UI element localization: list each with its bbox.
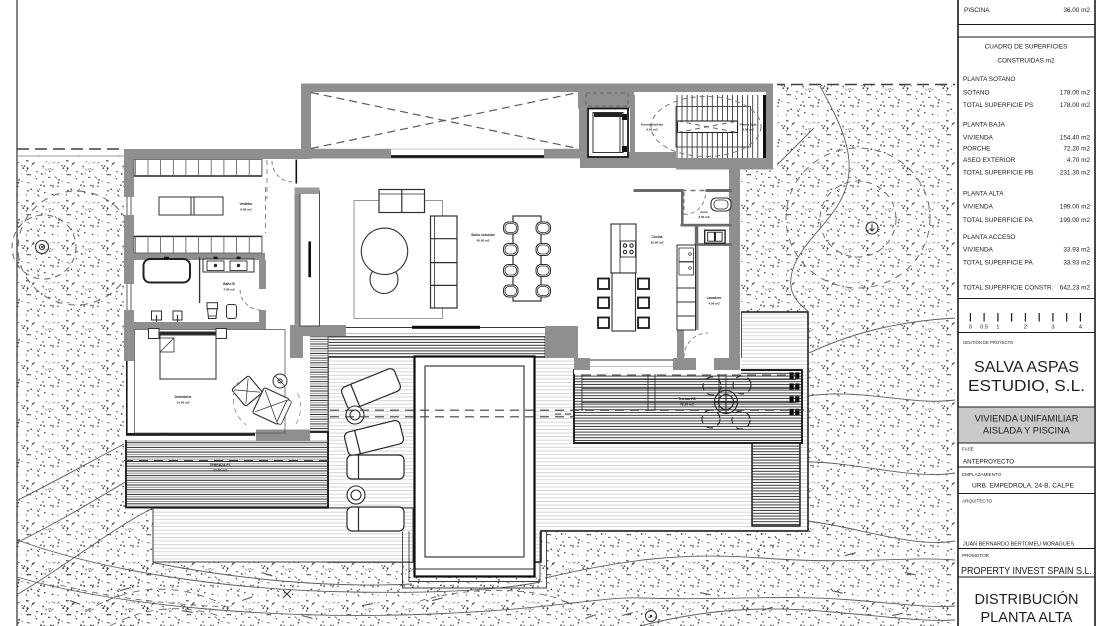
svg-text:PORCHE: PORCHE — [963, 146, 990, 153]
svg-text:Cocina: Cocina — [652, 235, 663, 239]
svg-text:642.23 m2: 642.23 m2 — [1060, 285, 1091, 292]
svg-text:URB. EMPEDROLA, 24-B, CALPE: URB. EMPEDROLA, 24-B, CALPE — [972, 483, 1074, 490]
svg-text:0.5: 0.5 — [980, 325, 988, 331]
svg-text:40.00 m2: 40.00 m2 — [476, 239, 489, 243]
svg-text:PISCINA: PISCINA — [964, 7, 990, 14]
svg-text:Vestidor: Vestidor — [239, 202, 253, 206]
svg-text:TERRAZA P1: TERRAZA P1 — [209, 463, 230, 467]
svg-text:TOTAL SUPERFICIE PA: TOTAL SUPERFICIE PA — [963, 260, 1033, 267]
svg-text:DISTRIBUCIÓN: DISTRIBUCIÓN — [975, 591, 1079, 608]
svg-text:Salón comedor: Salón comedor — [471, 233, 496, 237]
svg-text:GESTIÓN DE PROYECTO: GESTIÓN DE PROYECTO — [963, 340, 1014, 345]
svg-text:VIVIENDA: VIVIENDA — [963, 135, 994, 142]
svg-text:ASEO EXTERIOR: ASEO EXTERIOR — [963, 157, 1016, 164]
svg-text:TOTAL SUPERFICIE PB: TOTAL SUPERFICIE PB — [963, 170, 1033, 177]
svg-text:33.93 m2: 33.93 m2 — [1063, 260, 1090, 267]
svg-text:TOTAL SUPERFICIE PS: TOTAL SUPERFICIE PS — [963, 102, 1033, 109]
svg-text:178.00 m2: 178.00 m2 — [1060, 90, 1091, 97]
svg-text:231.30 m2: 231.30 m2 — [1060, 170, 1091, 177]
svg-text:2.50 m2: 2.50 m2 — [698, 215, 709, 219]
svg-text:CONSTRUIDAS m2: CONSTRUIDAS m2 — [997, 58, 1055, 65]
svg-text:TOTAL SUPERFICIE CONSTR.: TOTAL SUPERFICIE CONSTR. — [963, 285, 1054, 292]
svg-text:72.20 m2: 72.20 m2 — [1063, 146, 1090, 153]
svg-text:EMPLAZAMIENTO: EMPLAZAMIENTO — [962, 472, 1002, 477]
svg-text:PROPERTY INVEST SPAIN S.L.: PROPERTY INVEST SPAIN S.L. — [961, 565, 1092, 577]
svg-text:4: 4 — [1079, 325, 1082, 331]
svg-text:JUAN BERNARDO BERTOMEU MORAGUE: JUAN BERNARDO BERTOMEU MORAGUES — [963, 542, 1074, 548]
svg-text:SOTANO: SOTANO — [963, 90, 990, 97]
svg-text:Terraza PB: Terraza PB — [678, 397, 696, 401]
svg-text:PROMOTOR: PROMOTOR — [962, 553, 990, 558]
svg-text:ARQUITECTO: ARQUITECTO — [962, 499, 992, 504]
svg-text:Dormitorio: Dormitorio — [175, 395, 192, 399]
svg-text:PLANTA SOTANO: PLANTA SOTANO — [963, 76, 1015, 83]
svg-text:CUADRO DE SUPERFICIES: CUADRO DE SUPERFICIES — [985, 44, 1068, 51]
svg-text:3: 3 — [1051, 325, 1054, 331]
svg-text:14.00 m2: 14.00 m2 — [176, 401, 189, 405]
svg-text:ESTUDIO, S.L.: ESTUDIO, S.L. — [968, 378, 1085, 395]
svg-text:33.93 m2: 33.93 m2 — [1063, 247, 1090, 254]
svg-text:154.40 m2: 154.40 m2 — [1060, 135, 1091, 142]
svg-text:ANTEPROYECTO: ANTEPROYECTO — [963, 459, 1014, 466]
svg-text:TOTAL SUPERFICIE PA: TOTAL SUPERFICIE PA — [963, 217, 1033, 224]
svg-text:2: 2 — [1024, 325, 1027, 331]
svg-text:FASE: FASE — [962, 447, 974, 452]
svg-text:PLANTA BAJA: PLANTA BAJA — [963, 122, 1006, 129]
svg-text:178.00 m2: 178.00 m2 — [1060, 102, 1091, 109]
svg-text:VIVIENDA UNIFAMILIAR: VIVIENDA UNIFAMILIAR — [975, 414, 1079, 424]
svg-text:Planta Baja: Planta Baja — [740, 123, 757, 127]
svg-text:PLANTA ALTA: PLANTA ALTA — [963, 191, 1004, 198]
svg-text:9.00 m2: 9.00 m2 — [240, 208, 252, 212]
svg-text:20.00 m2: 20.00 m2 — [650, 241, 663, 245]
svg-text:AISLADA Y PISCINA: AISLADA Y PISCINA — [983, 426, 1071, 436]
svg-text:Aseo: Aseo — [700, 210, 708, 214]
svg-text:VIVIENDA: VIVIENDA — [963, 247, 994, 254]
svg-text:6.00 m2: 6.00 m2 — [646, 128, 658, 132]
svg-text:72.20 m2: 72.20 m2 — [680, 403, 694, 407]
svg-text:1: 1 — [996, 325, 999, 331]
svg-text:PLANTA ALTA: PLANTA ALTA — [981, 610, 1073, 626]
svg-text:3.00 m2: 3.00 m2 — [742, 128, 754, 132]
svg-text:199.00 m2: 199.00 m2 — [1060, 204, 1091, 211]
svg-text:0: 0 — [969, 325, 972, 331]
svg-text:4.70 m2: 4.70 m2 — [1067, 157, 1091, 164]
svg-text:4.00 m2: 4.00 m2 — [708, 302, 720, 306]
svg-text:32.00 m2: 32.00 m2 — [213, 469, 227, 473]
svg-text:Baño B: Baño B — [223, 282, 235, 286]
svg-text:Guardamaletas: Guardamaletas — [641, 123, 664, 127]
svg-text:VIVIENDA: VIVIENDA — [963, 204, 994, 211]
svg-text:SALVA ASPAS: SALVA ASPAS — [974, 359, 1079, 376]
svg-text:199.00 m2: 199.00 m2 — [1060, 217, 1091, 224]
svg-text:Lavadero: Lavadero — [707, 296, 722, 300]
svg-text:PLANTA ACCESO: PLANTA ACCESO — [963, 234, 1015, 241]
svg-text:36.00 m2: 36.00 m2 — [1063, 7, 1090, 14]
svg-text:7.00 m2: 7.00 m2 — [223, 288, 235, 292]
